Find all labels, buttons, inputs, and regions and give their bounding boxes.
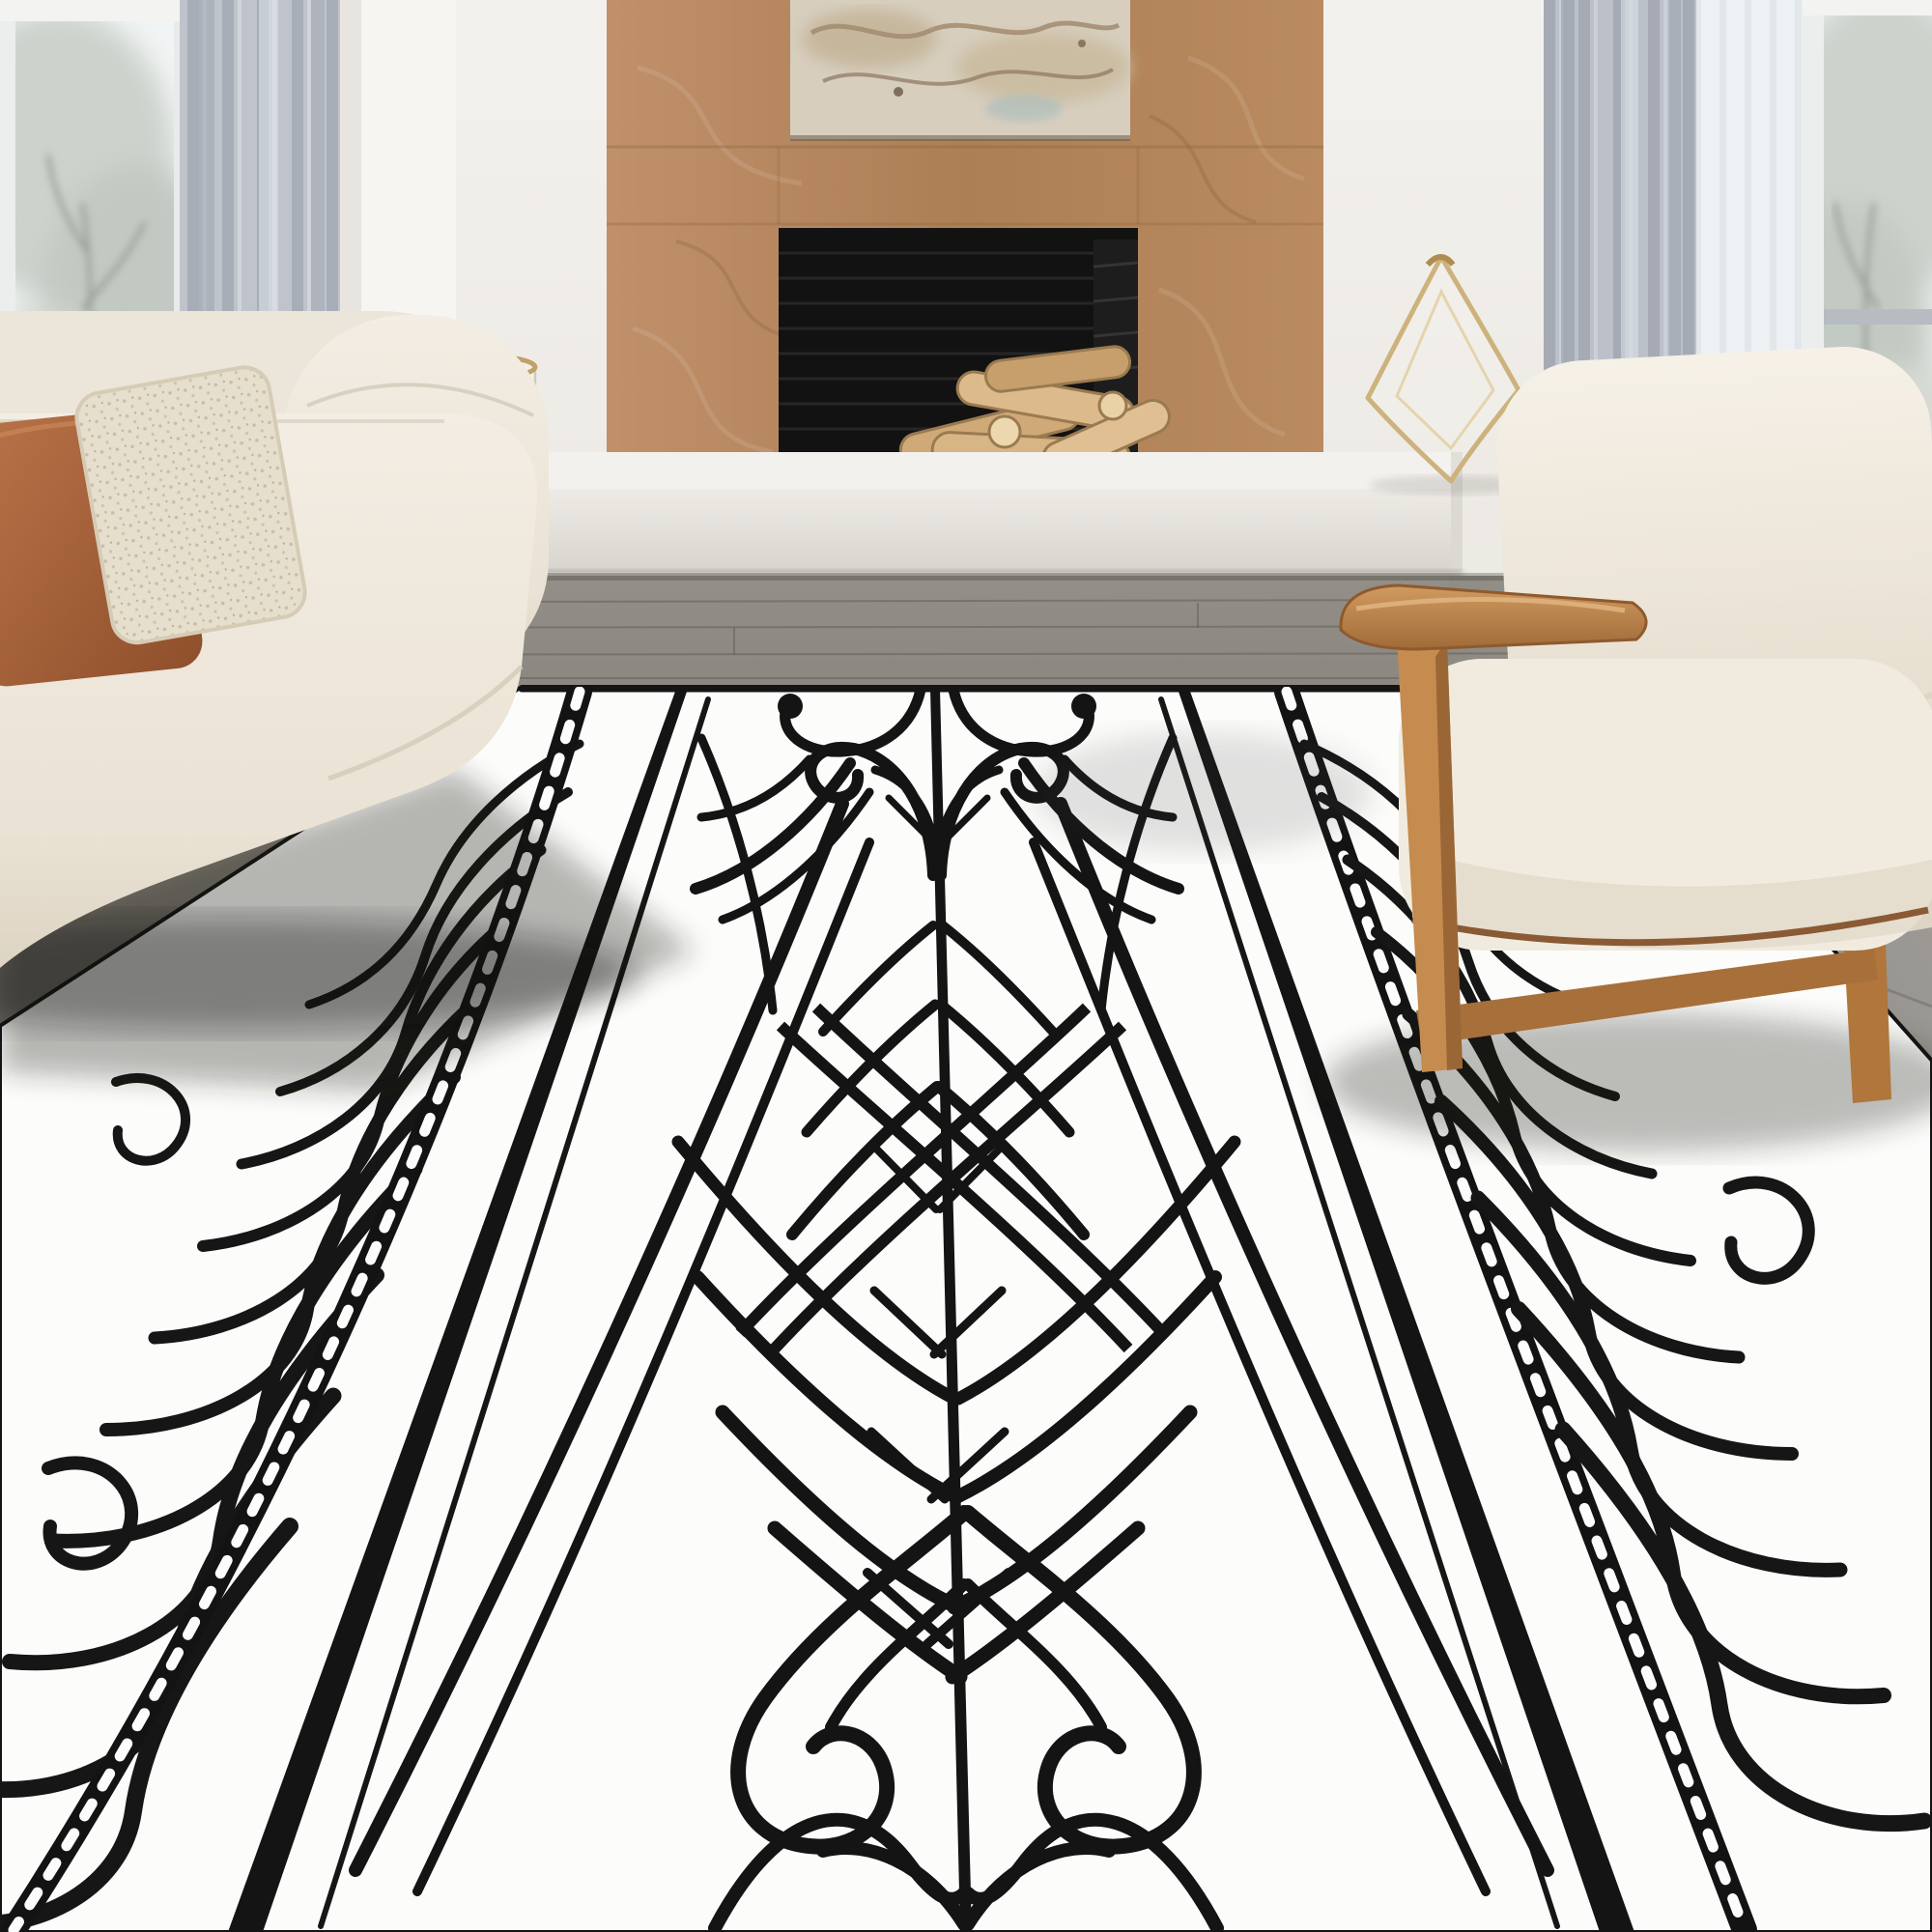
pillow-cream (72, 363, 308, 646)
artwork (790, 0, 1130, 141)
chair-shadow-smudge (1034, 732, 1372, 852)
chair-seat-cushion (1399, 659, 1932, 951)
armchair-shadow (1323, 1012, 1932, 1151)
scene (0, 0, 1932, 1932)
firebox (779, 228, 1175, 485)
living-room-scene (0, 0, 1932, 1932)
